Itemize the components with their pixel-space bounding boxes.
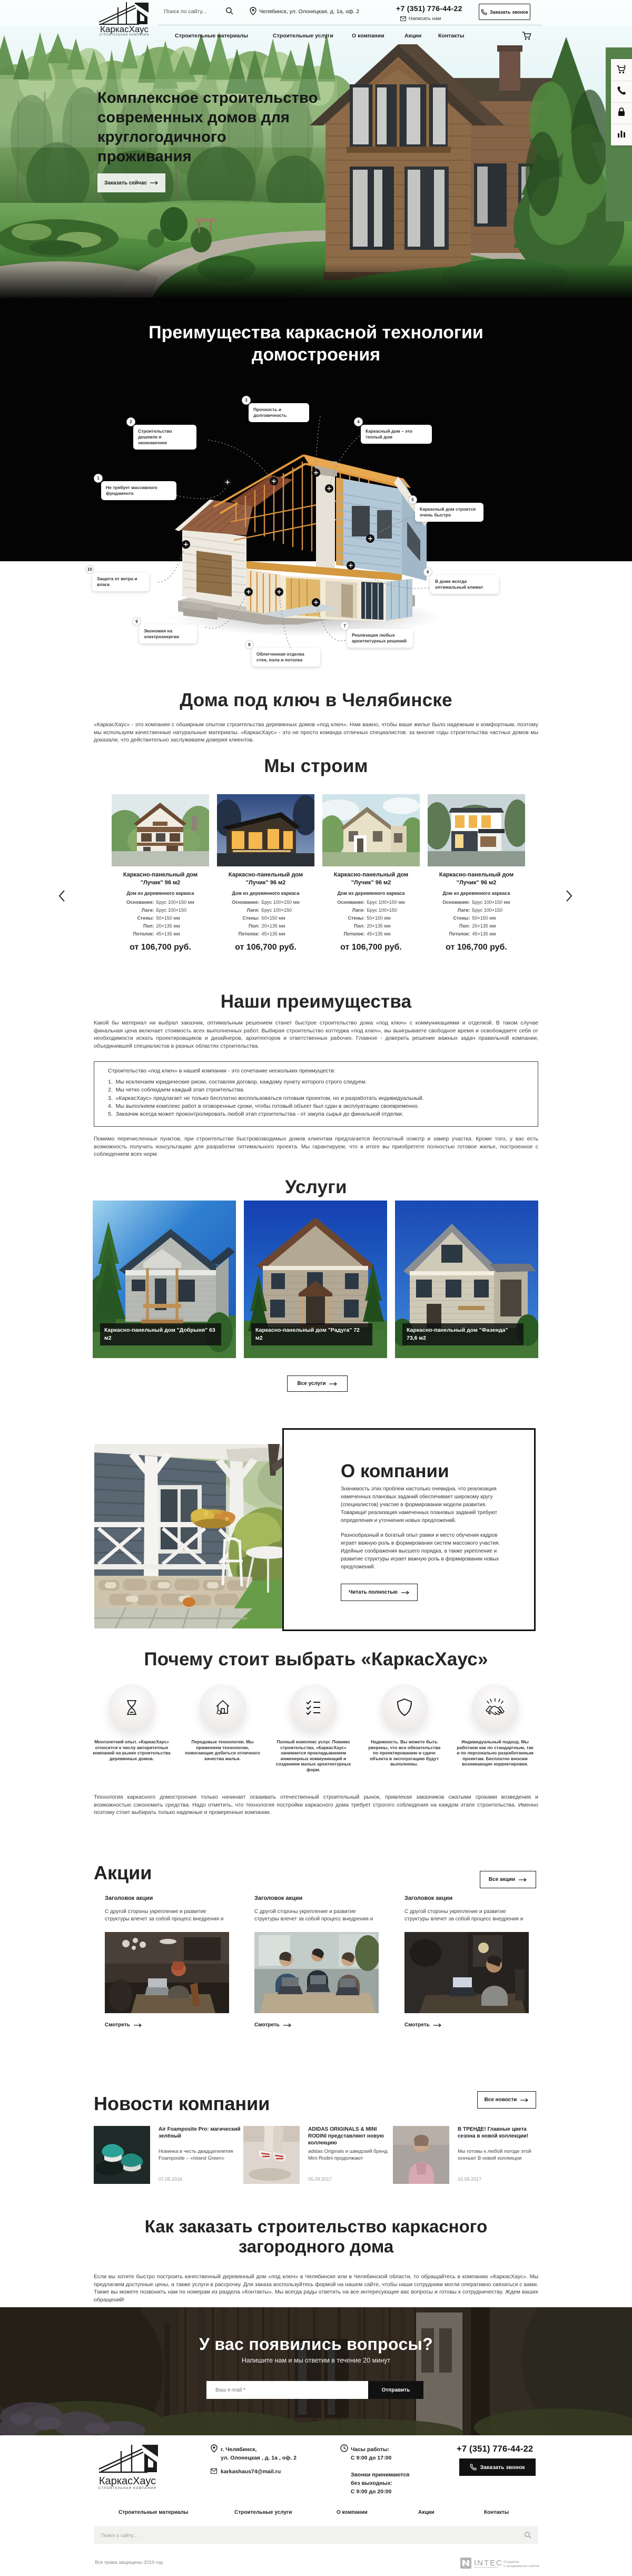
svg-text:и продвижение сайтов: и продвижение сайтов [503, 2564, 539, 2568]
svg-text:Создание: Создание [503, 2560, 519, 2564]
svg-text:КаркасХаус: КаркасХаус [99, 2475, 156, 2487]
svg-text:СТРОИТЕЛЬНАЯ КОМПАНИЯ: СТРОИТЕЛЬНАЯ КОМПАНИЯ [98, 2487, 156, 2490]
svg-text:КаркасХаус: КаркасХаус [100, 24, 149, 34]
svg-text:INTEC: INTEC [474, 2559, 503, 2568]
svg-text:СТРОИТЕЛЬНАЯ КОМПАНИЯ: СТРОИТЕЛЬНАЯ КОМПАНИЯ [100, 34, 149, 36]
